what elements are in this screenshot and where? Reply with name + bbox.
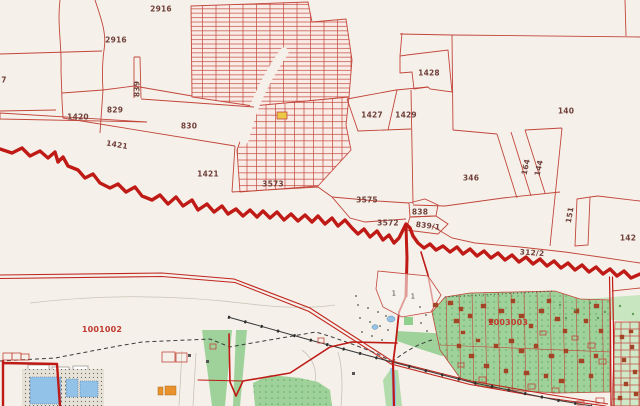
parcel-1-outline [376, 271, 441, 317]
dense-parcel-grid [191, 2, 352, 192]
orange-buildings [158, 386, 176, 395]
small-green-square [404, 317, 413, 325]
pond [372, 325, 378, 330]
cadastral-map-canvas[interactable]: 2916291671420829839830142114211428142714… [0, 0, 640, 406]
pond [387, 316, 395, 322]
selected-parcel-highlight[interactable] [277, 112, 287, 119]
map-linework [0, 0, 640, 406]
